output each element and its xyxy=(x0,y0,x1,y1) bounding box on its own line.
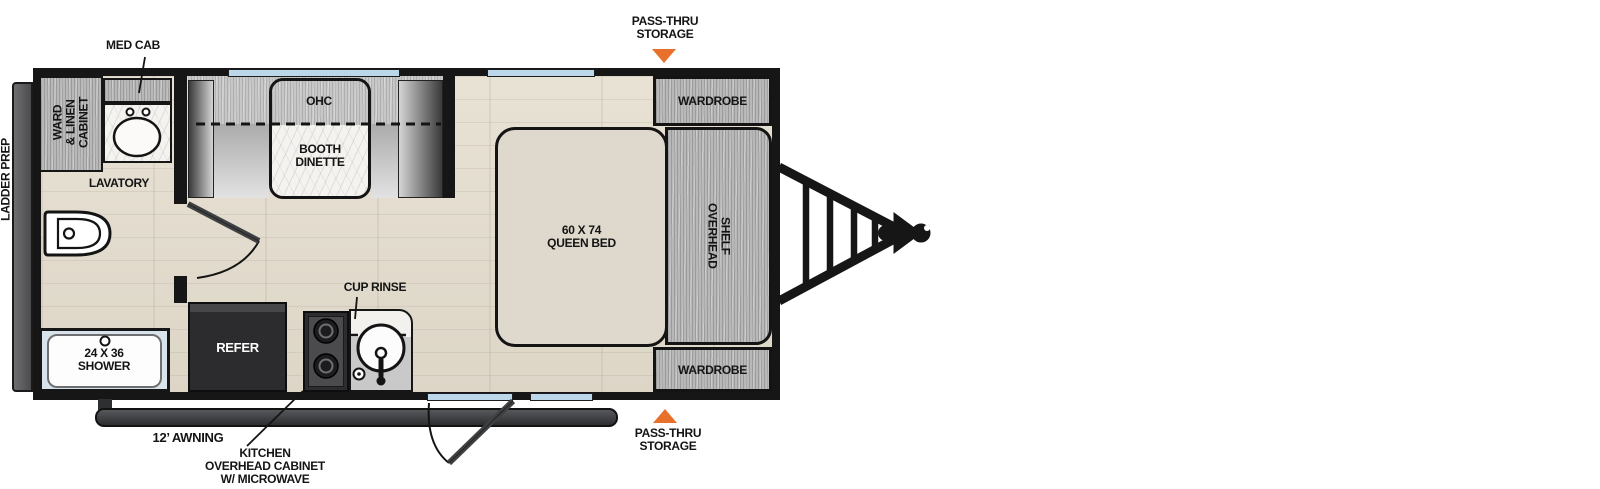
overhead-shelf-label: OVERHEAD SHELF xyxy=(705,203,731,269)
bath-sink-counter xyxy=(103,103,172,163)
dinette-seat-left xyxy=(214,124,269,198)
awning-label: 12’ AWNING xyxy=(128,431,248,445)
pass-thru-bottom-arrow-icon xyxy=(653,409,677,423)
overhead-shelf: OVERHEAD SHELF xyxy=(665,127,772,345)
shower-label: 24 X 36 SHOWER xyxy=(54,347,154,373)
window-top-left xyxy=(228,69,400,77)
medicine-cabinet xyxy=(103,78,172,103)
kitchen-ohc-label: KITCHEN OVERHEAD CABINET W/ MICROWAVE xyxy=(185,447,345,486)
pass-thru-top-label: PASS-THRU STORAGE xyxy=(615,15,715,41)
pass-thru-top-arrow-icon xyxy=(652,49,676,63)
med-cab-label: MED CAB xyxy=(93,39,173,52)
floorplan-canvas: LADDER PREP WARD & LINEN CABINET 24 X 36… xyxy=(0,0,1600,489)
wardrobe-top: WARDROBE xyxy=(653,76,772,126)
wardrobe-top-label: WARDROBE xyxy=(678,94,747,108)
kitchen-counter xyxy=(349,309,413,392)
cup-rinse-label: CUP RINSE xyxy=(325,281,425,294)
hitch-icon xyxy=(779,167,930,301)
refer-label: REFER xyxy=(216,340,259,355)
dinette-side-left xyxy=(188,80,214,198)
queen-bed-label: 60 X 74 QUEEN BED xyxy=(547,224,616,250)
bath-wall-lower xyxy=(174,276,187,303)
lavatory-label: LAVATORY xyxy=(69,177,169,190)
ladder-prep-panel xyxy=(12,82,33,392)
refrigerator: REFER xyxy=(188,302,287,392)
ladder-prep-label: LADDER PREP xyxy=(0,104,12,254)
wardrobe-bottom-label: WARDROBE xyxy=(678,363,747,377)
awning-bar xyxy=(95,408,618,427)
dinette-seat-right xyxy=(371,124,398,198)
window-top-right xyxy=(487,69,595,77)
ohc-label: OHC xyxy=(289,95,349,108)
ward-linen-label: WARD & LINEN CABINET xyxy=(52,74,91,170)
bath-wall-upper xyxy=(174,76,187,204)
booth-dinette-label: BOOTH DINETTE xyxy=(270,143,370,169)
dinette-side-right xyxy=(398,80,443,198)
entry-door-glass-left xyxy=(427,393,513,401)
wardrobe-bottom: WARDROBE xyxy=(653,347,772,392)
queen-bed: 60 X 74 QUEEN BED xyxy=(495,127,668,347)
stove-top-panel xyxy=(308,316,344,387)
bedroom-partition-wall xyxy=(443,76,455,198)
pass-thru-bottom-label: PASS-THRU STORAGE xyxy=(618,427,718,453)
entry-door-glass-right xyxy=(530,393,593,401)
